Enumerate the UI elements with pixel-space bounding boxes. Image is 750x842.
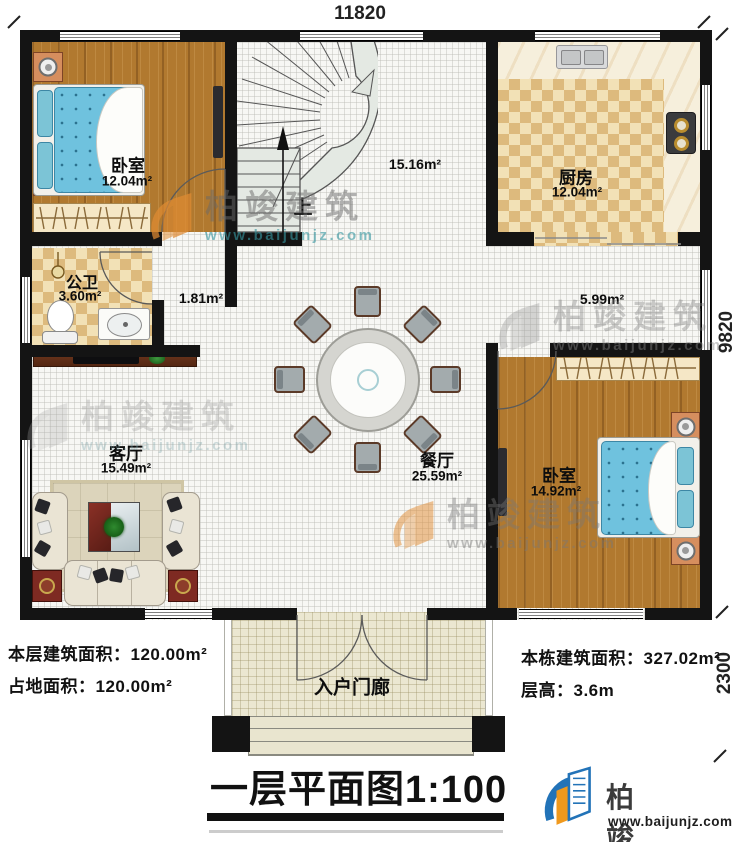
bathroom-vanity (98, 308, 150, 340)
faucet-icon (123, 322, 128, 327)
pillow (677, 490, 694, 528)
brand-name: 柏竣建筑 (606, 776, 637, 842)
dining-chair (354, 286, 381, 317)
window (701, 85, 711, 150)
sink-basin (584, 50, 604, 65)
label-kitchen-area: 12.04m² (552, 185, 602, 200)
kitchen-door-threshold (534, 232, 678, 246)
label-porch: 入户门廊 (314, 673, 390, 700)
label-bathroom-area: 3.60m² (59, 289, 102, 304)
lamp-icon (676, 541, 695, 560)
label-stairs-up: 上 (293, 193, 312, 220)
dining-chair (274, 366, 305, 393)
stat-land-area: 占地面积：120.00m² (8, 672, 172, 697)
toilet (42, 300, 78, 346)
window (21, 440, 31, 557)
pillow (37, 90, 53, 137)
page-title: 一层平面图1:100 (210, 758, 507, 813)
brand-logo (542, 766, 602, 828)
burner (674, 118, 689, 133)
wall (645, 608, 712, 620)
wall (152, 300, 164, 345)
stat-total-area: 本栋建筑面积：327.02m² (521, 644, 720, 669)
toilet-tank (42, 331, 78, 344)
porch-pillar-left (212, 716, 250, 752)
dimension-right-height: 9820 (716, 299, 738, 365)
wall (486, 232, 534, 246)
lamp-icon (39, 58, 58, 77)
window (519, 609, 643, 619)
label-hall-area: 15.16m² (389, 156, 441, 172)
tv-panel (498, 448, 507, 516)
window (60, 31, 180, 41)
label-bedroom-1-area: 12.04m² (102, 174, 152, 189)
side-table (168, 570, 198, 602)
porch-rail-right (485, 612, 493, 716)
wall (225, 232, 302, 246)
side-table (32, 570, 62, 602)
cushion (109, 568, 124, 583)
dining-chair (430, 366, 461, 393)
nightstand (671, 536, 700, 565)
label-hallway-area: 1.81m² (179, 290, 223, 306)
bed (597, 437, 700, 538)
wall (20, 608, 145, 620)
label-dining-room-area: 25.59m² (412, 469, 462, 484)
wall (212, 608, 297, 620)
stove (666, 112, 696, 154)
window (535, 31, 660, 41)
window (701, 270, 711, 350)
wall (678, 232, 712, 246)
dining-chair (354, 442, 381, 473)
wardrobe (556, 357, 700, 381)
wall (225, 246, 237, 307)
wall (20, 345, 200, 357)
nightstand (33, 52, 63, 82)
label-bedroom-2-area: 14.92m² (531, 484, 581, 499)
kitchen-tile-floor (498, 79, 664, 232)
title-underline (207, 813, 504, 821)
wall (225, 42, 237, 246)
dining-table (316, 328, 420, 432)
kitchen-sink (556, 45, 608, 69)
plant (104, 517, 124, 537)
wall (486, 42, 498, 244)
floor-plan-page: 11820 9820 2300 (0, 0, 750, 842)
wall (486, 343, 498, 608)
porch-pillar-right (472, 716, 505, 752)
window (145, 609, 212, 619)
dimension-top: 11820 (320, 3, 400, 25)
toilet-bowl (47, 300, 74, 333)
title-underline-light (209, 830, 503, 833)
porch-steps (248, 716, 474, 756)
window (300, 31, 423, 41)
wardrobe (33, 203, 151, 233)
stat-floor-area: 本层建筑面积：120.00m² (8, 640, 207, 665)
stat-floor-height: 层高：3.6m (521, 676, 614, 701)
brand-footer: 柏竣建筑 www.baijunjz.com (542, 766, 602, 833)
pillow (677, 447, 694, 485)
burner (674, 136, 689, 151)
coffee-table (88, 502, 140, 552)
wall (550, 343, 712, 357)
tv-panel (213, 86, 223, 158)
porch-rail-left (224, 612, 232, 716)
brand-url: www.baijunjz.com (608, 814, 733, 829)
wall (427, 608, 517, 620)
room-porch (232, 612, 485, 716)
lazy-susan (357, 369, 379, 391)
label-living-room-area: 15.49m² (101, 461, 151, 476)
sink-basin (561, 50, 581, 65)
pillow (37, 142, 53, 189)
wall (20, 232, 162, 246)
lamp-icon (676, 417, 695, 436)
window (21, 277, 31, 343)
label-corridor-area: 5.99m² (580, 291, 624, 307)
